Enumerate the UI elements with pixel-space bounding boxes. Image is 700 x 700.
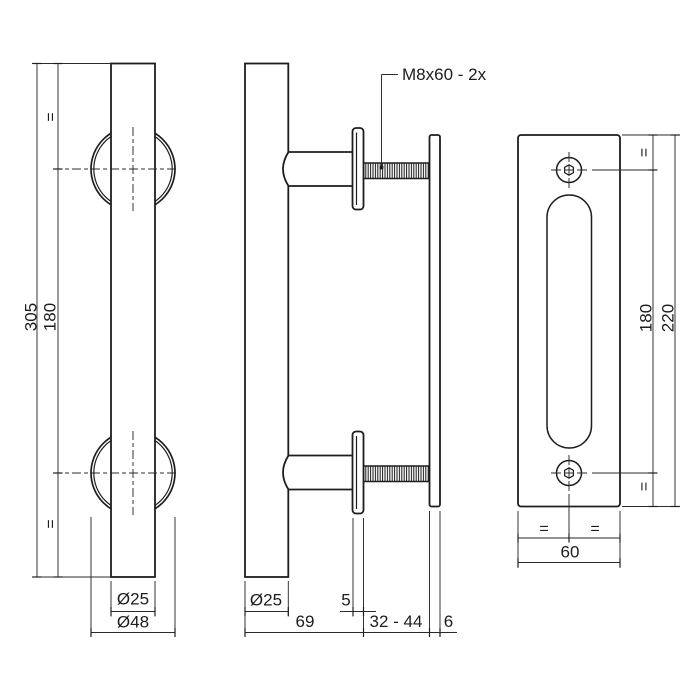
plate-view: 180 220 = = = = 60 <box>518 135 680 568</box>
dim-text-180-front: 180 <box>41 303 60 331</box>
rose-side-bottom <box>353 432 364 514</box>
bolt-thread-bottom <box>364 466 430 482</box>
back-plate <box>518 135 620 507</box>
dim-text-305: 305 <box>22 303 41 331</box>
bolt-thread-top <box>364 163 430 179</box>
side-view: M8x60 - 2x Ø25 5 69 32 - 44 6 <box>245 64 487 638</box>
handle-bar-side <box>245 64 288 578</box>
dim-text-d25-side: Ø25 <box>250 591 282 610</box>
equality-mark-plate-bottom: = <box>636 482 653 491</box>
dim-text-5: 5 <box>341 591 350 610</box>
dim-text-69: 69 <box>296 612 315 631</box>
bolt-label: M8x60 - 2x <box>402 65 487 84</box>
leader-dot <box>380 166 384 170</box>
equality-mark-width-left: = <box>539 521 548 538</box>
equality-mark-width-right: = <box>590 521 599 538</box>
equality-mark-top: = <box>43 112 60 121</box>
technical-drawing: 305 180 = = Ø25 Ø48 M8x60 - 2x <box>0 0 700 700</box>
stem-top <box>283 152 353 186</box>
dim-text-32-44: 32 - 44 <box>370 612 423 631</box>
dim-text-6: 6 <box>444 612 453 631</box>
plate-edge-view <box>430 135 441 507</box>
front-view: 305 180 = = Ø25 Ø48 <box>22 64 177 638</box>
dim-text-60: 60 <box>561 543 580 562</box>
equality-mark-bottom: = <box>43 519 60 528</box>
drawing-canvas: 305 180 = = Ø25 Ø48 M8x60 - 2x <box>0 0 700 700</box>
dim-text-d48: Ø48 <box>117 613 149 632</box>
equality-mark-plate-top: = <box>636 148 653 157</box>
stem-bottom <box>283 456 353 490</box>
rose-side-top <box>353 128 364 210</box>
dim-text-220: 220 <box>659 304 678 332</box>
dim-text-180-plate: 180 <box>637 304 656 332</box>
dim-text-d25-front: Ø25 <box>117 590 149 609</box>
